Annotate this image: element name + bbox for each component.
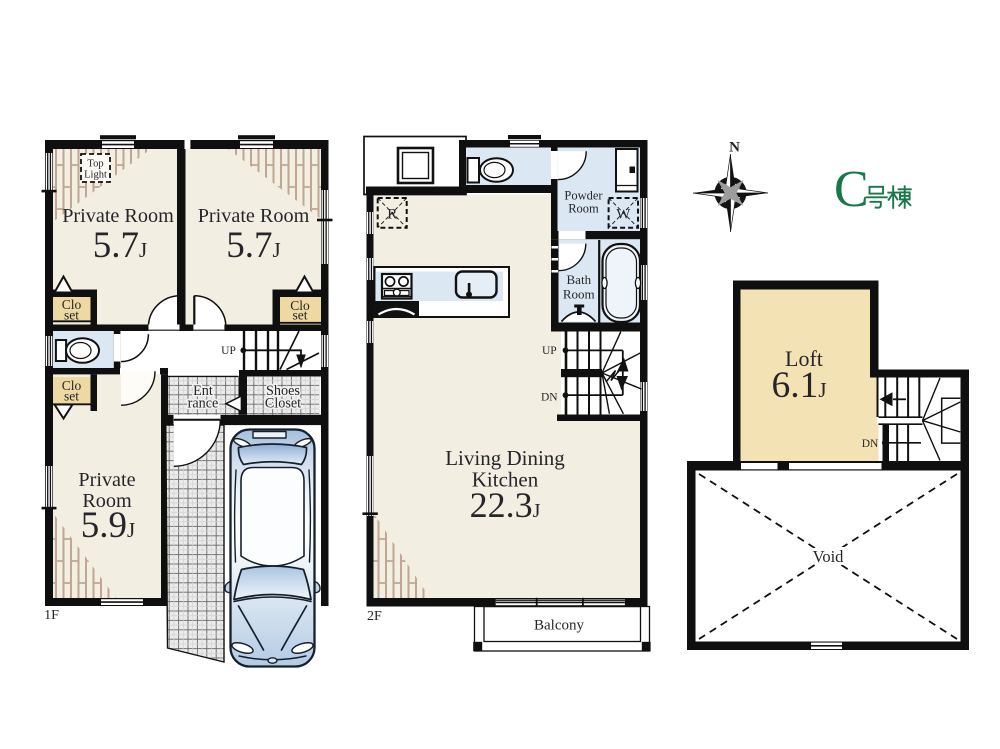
svg-text:Closet: Closet <box>265 395 301 411</box>
svg-text:set: set <box>64 388 79 403</box>
svg-text:UP: UP <box>221 345 236 357</box>
svg-text:Powder: Powder <box>564 189 603 203</box>
svg-text:Private Room: Private Room <box>62 205 174 227</box>
svg-text:R: R <box>387 206 397 222</box>
svg-text:1F: 1F <box>44 608 59 623</box>
svg-text:Balcony: Balcony <box>534 618 584 634</box>
svg-text:2F: 2F <box>367 609 382 624</box>
svg-text:Private Room: Private Room <box>198 205 310 227</box>
svg-text:Room: Room <box>563 287 595 302</box>
svg-text:Bath: Bath <box>567 272 592 287</box>
svg-text:DN: DN <box>541 391 558 403</box>
svg-text:C: C <box>834 161 869 218</box>
svg-text:rance: rance <box>188 395 219 411</box>
svg-text:Top: Top <box>87 159 103 170</box>
svg-text:Room: Room <box>568 202 599 216</box>
svg-text:22.3J: 22.3J <box>470 485 541 525</box>
svg-text:Living Dining: Living Dining <box>445 446 565 470</box>
svg-text:Light: Light <box>84 170 107 181</box>
svg-text:set: set <box>64 307 79 322</box>
svg-text:Private: Private <box>78 469 135 491</box>
svg-text:6.1J: 6.1J <box>771 365 826 406</box>
svg-text:set: set <box>293 308 308 323</box>
svg-text:DN: DN <box>862 438 879 450</box>
svg-text:N: N <box>729 140 740 156</box>
svg-text:Void: Void <box>813 547 845 566</box>
svg-text:UP: UP <box>542 345 557 357</box>
svg-text:W: W <box>616 206 631 222</box>
